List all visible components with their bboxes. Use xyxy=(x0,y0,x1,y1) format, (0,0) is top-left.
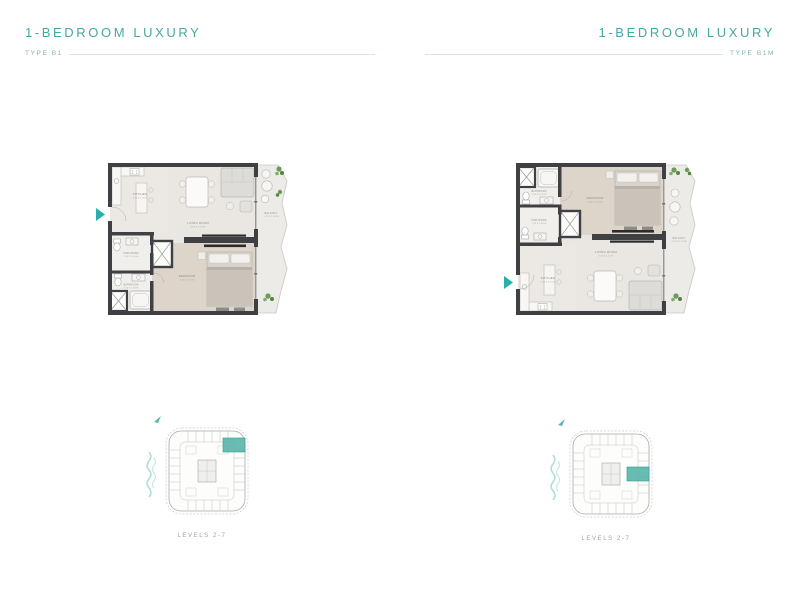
water-waves-icon xyxy=(557,461,560,491)
media-wall xyxy=(184,237,256,243)
key-plan-b1 xyxy=(142,412,262,530)
armchair xyxy=(648,265,660,276)
room-dims-bathroom: 2.50 X 1.60 M xyxy=(124,288,139,290)
shaft xyxy=(560,211,580,237)
room-label-living: LIVING ROOM xyxy=(187,221,209,225)
building-footprint xyxy=(166,428,248,514)
levels-caption: LEVELS 2-7 xyxy=(546,536,666,542)
floor-plan-type-b1m: BEDROOM 3.60 X 3.10 M BATHROOM 2.50 X 1.… xyxy=(498,155,718,332)
entry-arrow-icon xyxy=(96,208,105,221)
page-title: 1-BEDROOM LUXURY xyxy=(599,25,775,40)
sink xyxy=(534,233,546,240)
type-row: TYPE B1M xyxy=(425,50,775,60)
media-wall xyxy=(592,234,664,240)
room-label-living: LIVING ROOM xyxy=(595,250,617,254)
entry-arrow-icon xyxy=(504,276,513,289)
room-label-bedroom: BEDROOM xyxy=(179,274,196,278)
panel-type-b1m: 1-BEDROOM LUXURY TYPE B1M xyxy=(400,0,800,600)
room-dims-kitchen: 3.05 X 1.70 M xyxy=(541,282,556,284)
toilet xyxy=(522,227,529,239)
room-dims-living: 3.60 X 4.15 M xyxy=(191,227,206,229)
nightstand xyxy=(198,252,206,260)
brochure-spread: 1-BEDROOM LUXURY TYPE B1 xyxy=(0,0,800,600)
water-waves-icon xyxy=(153,458,156,488)
shaft xyxy=(110,291,127,311)
levels-caption: LEVELS 2-7 xyxy=(142,533,262,539)
room-dims-bathroom: 2.50 X 1.60 M xyxy=(532,194,547,196)
toilet xyxy=(114,239,121,251)
toilet xyxy=(523,192,530,204)
type-row: TYPE B1 xyxy=(25,50,375,60)
unit-highlight xyxy=(627,467,649,481)
balcony-area xyxy=(256,165,287,313)
shaft xyxy=(152,241,172,267)
page-title: 1-BEDROOM LUXURY xyxy=(25,25,201,40)
room-dims-kitchen: 3.05 X 1.70 M xyxy=(133,198,148,200)
room-dims-bedroom: 3.60 X 3.10 M xyxy=(180,280,195,282)
sink xyxy=(540,197,553,204)
building-footprint xyxy=(570,431,652,517)
unit-highlight xyxy=(223,438,245,452)
room-dims-balcony: 5.75 X 1.10 M xyxy=(264,216,279,218)
room-label-powder: PWD ROOM xyxy=(531,220,546,222)
nightstand xyxy=(606,171,614,179)
floor-plan-type-b1: KITCHEN 3.05 X 1.70 M LIVING ROOM 3.60 X… xyxy=(90,155,310,332)
bathtub xyxy=(130,291,151,309)
room-label-kitchen: KITCHEN xyxy=(133,192,147,196)
room-label-powder: PWD ROOM xyxy=(123,253,138,255)
room-label-balcony: BALCONY xyxy=(673,237,686,240)
shaft xyxy=(518,167,535,187)
type-label: TYPE B1 xyxy=(25,50,63,57)
room-label-bedroom: BEDROOM xyxy=(587,196,604,200)
room-dims-powder: 1.70 X 1.10 M xyxy=(532,223,547,225)
dresser xyxy=(612,230,654,233)
panel-type-b1: 1-BEDROOM LUXURY TYPE B1 xyxy=(0,0,400,600)
north-arrow-icon xyxy=(558,419,565,426)
tv xyxy=(202,235,246,237)
room-label-bathroom: BATHROOM xyxy=(123,284,138,287)
sink xyxy=(126,238,138,245)
side-table xyxy=(227,203,234,210)
type-label: TYPE B1M xyxy=(730,50,775,57)
room-dims-living: 3.60 X 4.15 M xyxy=(599,256,614,258)
dresser xyxy=(204,245,246,248)
side-table xyxy=(635,268,642,275)
armchair xyxy=(240,201,252,212)
divider-rule xyxy=(425,54,723,55)
room-label-kitchen: KITCHEN xyxy=(541,276,555,280)
room-dims-balcony: 5.75 X 1.10 M xyxy=(672,241,687,243)
water-waves-icon xyxy=(551,455,555,500)
divider-rule xyxy=(69,54,375,55)
sink xyxy=(132,274,145,281)
room-label-balcony: BALCONY xyxy=(265,212,278,215)
water-waves-icon xyxy=(147,452,151,497)
room-dims-bedroom: 3.60 X 3.10 M xyxy=(588,202,603,204)
bathtub xyxy=(538,169,559,187)
room-dims-powder: 1.70 X 1.10 M xyxy=(124,256,139,258)
toilet xyxy=(115,274,122,286)
north-arrow-icon xyxy=(154,416,161,423)
key-plan-b1m xyxy=(546,415,666,533)
room-label-bathroom: BATHROOM xyxy=(531,190,546,193)
tv xyxy=(610,241,654,243)
